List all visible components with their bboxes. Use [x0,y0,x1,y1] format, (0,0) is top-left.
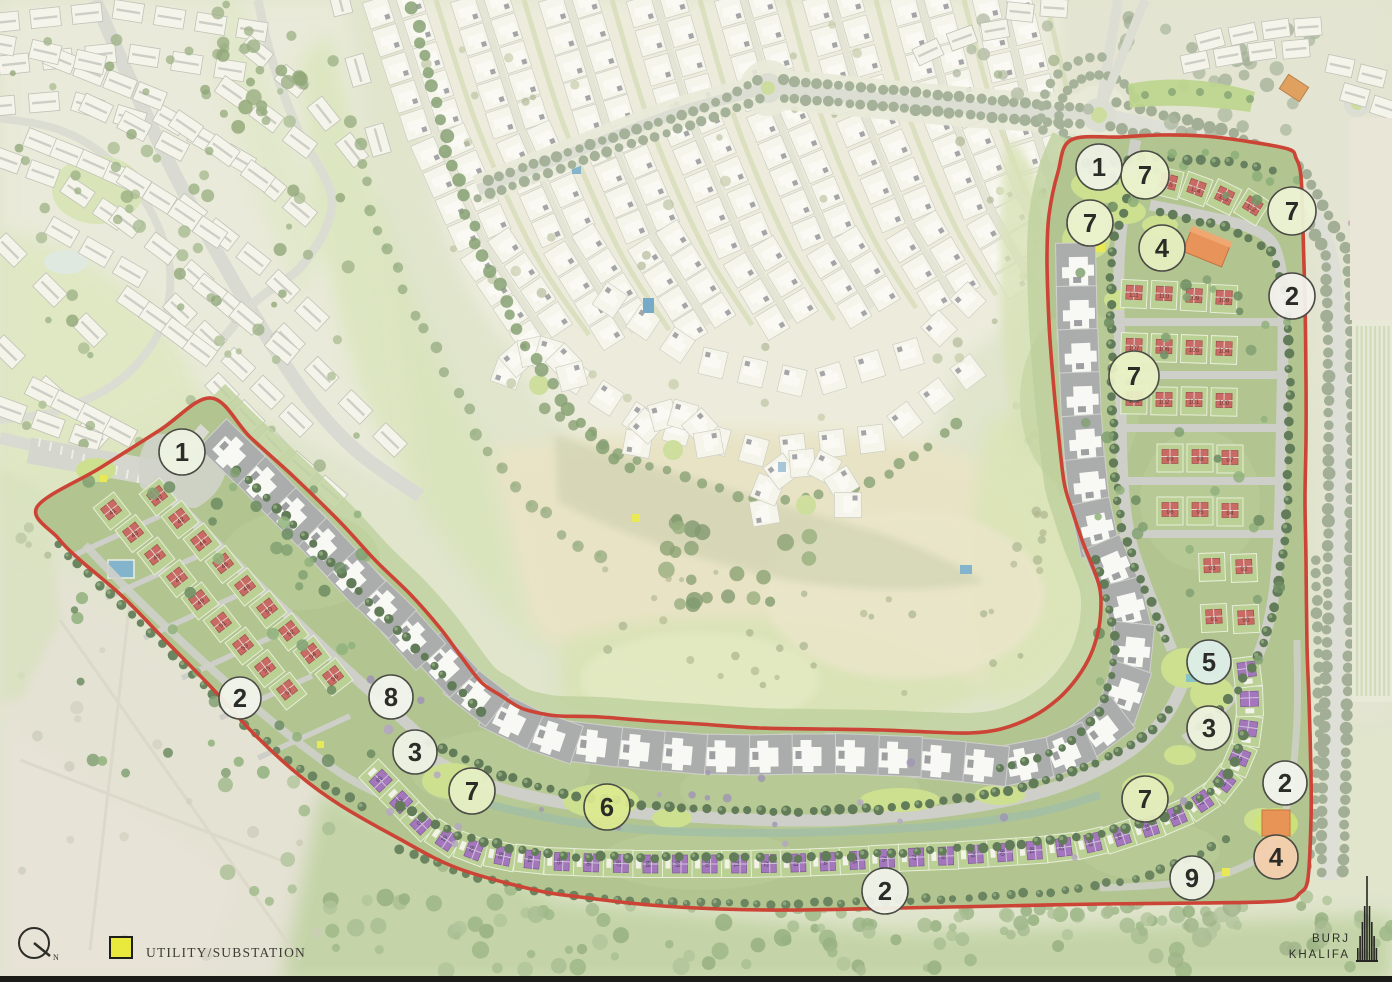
svg-text:7: 7 [1285,198,1299,226]
svg-text:7: 7 [1083,210,1097,238]
svg-text:3: 3 [1202,715,1216,743]
svg-text:7: 7 [1138,162,1152,190]
svg-text:1: 1 [1092,154,1106,182]
svg-text:KHALIFA: KHALIFA [1289,949,1350,961]
svg-text:3: 3 [408,739,422,767]
svg-text:6: 6 [600,794,614,822]
svg-text:4: 4 [1269,844,1284,872]
svg-text:BURJ: BURJ [1312,933,1350,945]
svg-text:7: 7 [465,778,479,806]
svg-text:8: 8 [384,684,398,712]
svg-text:4: 4 [1155,235,1170,263]
svg-text:2: 2 [1285,283,1299,311]
svg-text:7: 7 [1138,786,1152,814]
svg-text:1: 1 [175,439,189,467]
svg-text:UTILITY/SUBSTATION: UTILITY/SUBSTATION [146,945,306,960]
svg-text:7: 7 [1127,363,1141,391]
svg-text:N: N [53,953,59,962]
svg-text:9: 9 [1185,865,1199,893]
svg-text:2: 2 [878,878,892,906]
svg-text:2: 2 [1278,770,1292,798]
svg-text:2: 2 [233,685,247,713]
svg-text:5: 5 [1202,649,1216,677]
